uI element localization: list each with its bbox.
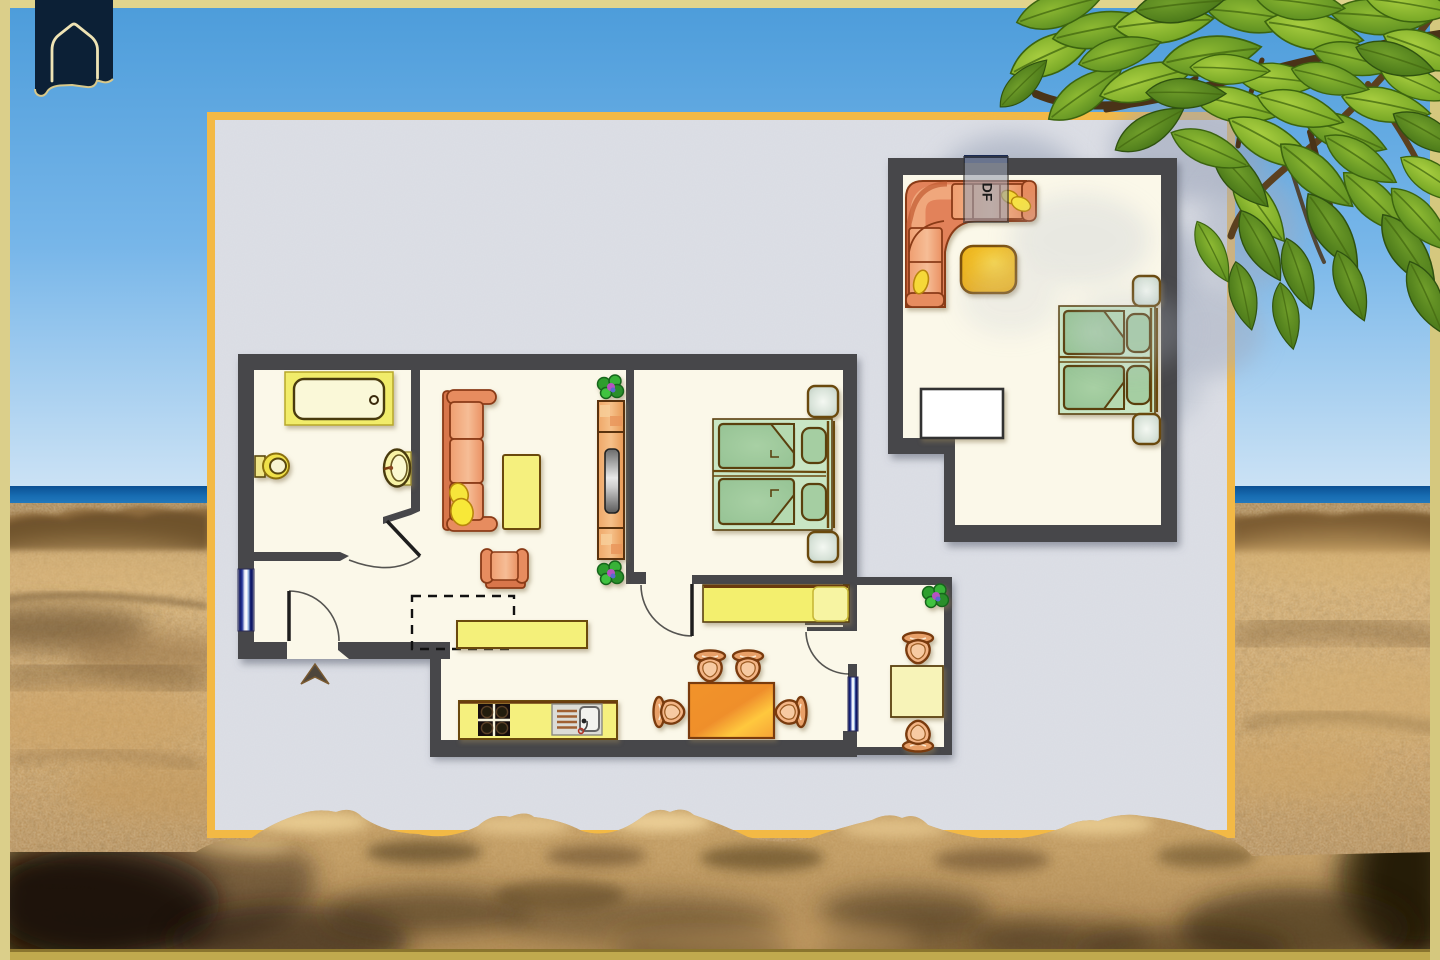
svg-text:DF: DF — [979, 183, 995, 202]
